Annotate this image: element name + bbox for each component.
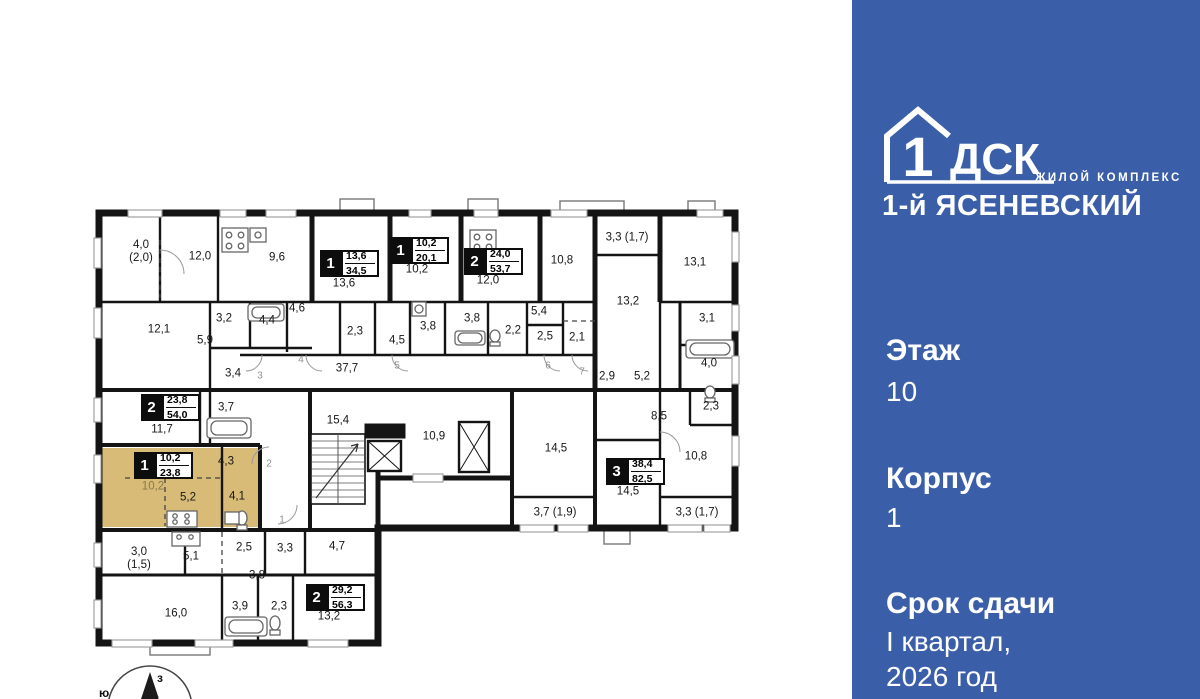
staircase bbox=[311, 434, 365, 504]
floor-value: 10 bbox=[886, 376, 917, 408]
logo-subtitle: ЖИЛОЙ КОМПЛЕКС bbox=[1035, 172, 1182, 184]
screenshot-root: з ю 4,0 (2,0)12,09,613,610,21,612,010,83… bbox=[0, 0, 1200, 699]
compass-west-label: з bbox=[157, 671, 163, 685]
compass-south-label: ю bbox=[99, 686, 109, 699]
logo-letters: ДСК bbox=[950, 135, 1040, 184]
deadline-label: Срок сдачи bbox=[886, 587, 1055, 621]
building-label: Корпус bbox=[886, 462, 992, 496]
info-panel: 1 ДСК ЖИЛОЙ КОМПЛЕКС 1-й ЯСЕНЕВСКИЙ Этаж… bbox=[852, 0, 1200, 699]
developer-logo: 1 ДСК bbox=[882, 106, 1058, 193]
deadline-quarter: I квартал, bbox=[886, 626, 1011, 658]
floor-label: Этаж bbox=[886, 334, 960, 368]
logo-digit: 1 bbox=[902, 125, 933, 188]
building-value: 1 bbox=[886, 502, 902, 534]
deadline-year: 2026 год bbox=[886, 661, 997, 693]
complex-name: 1-й ЯСЕНЕВСКИЙ bbox=[882, 190, 1142, 223]
